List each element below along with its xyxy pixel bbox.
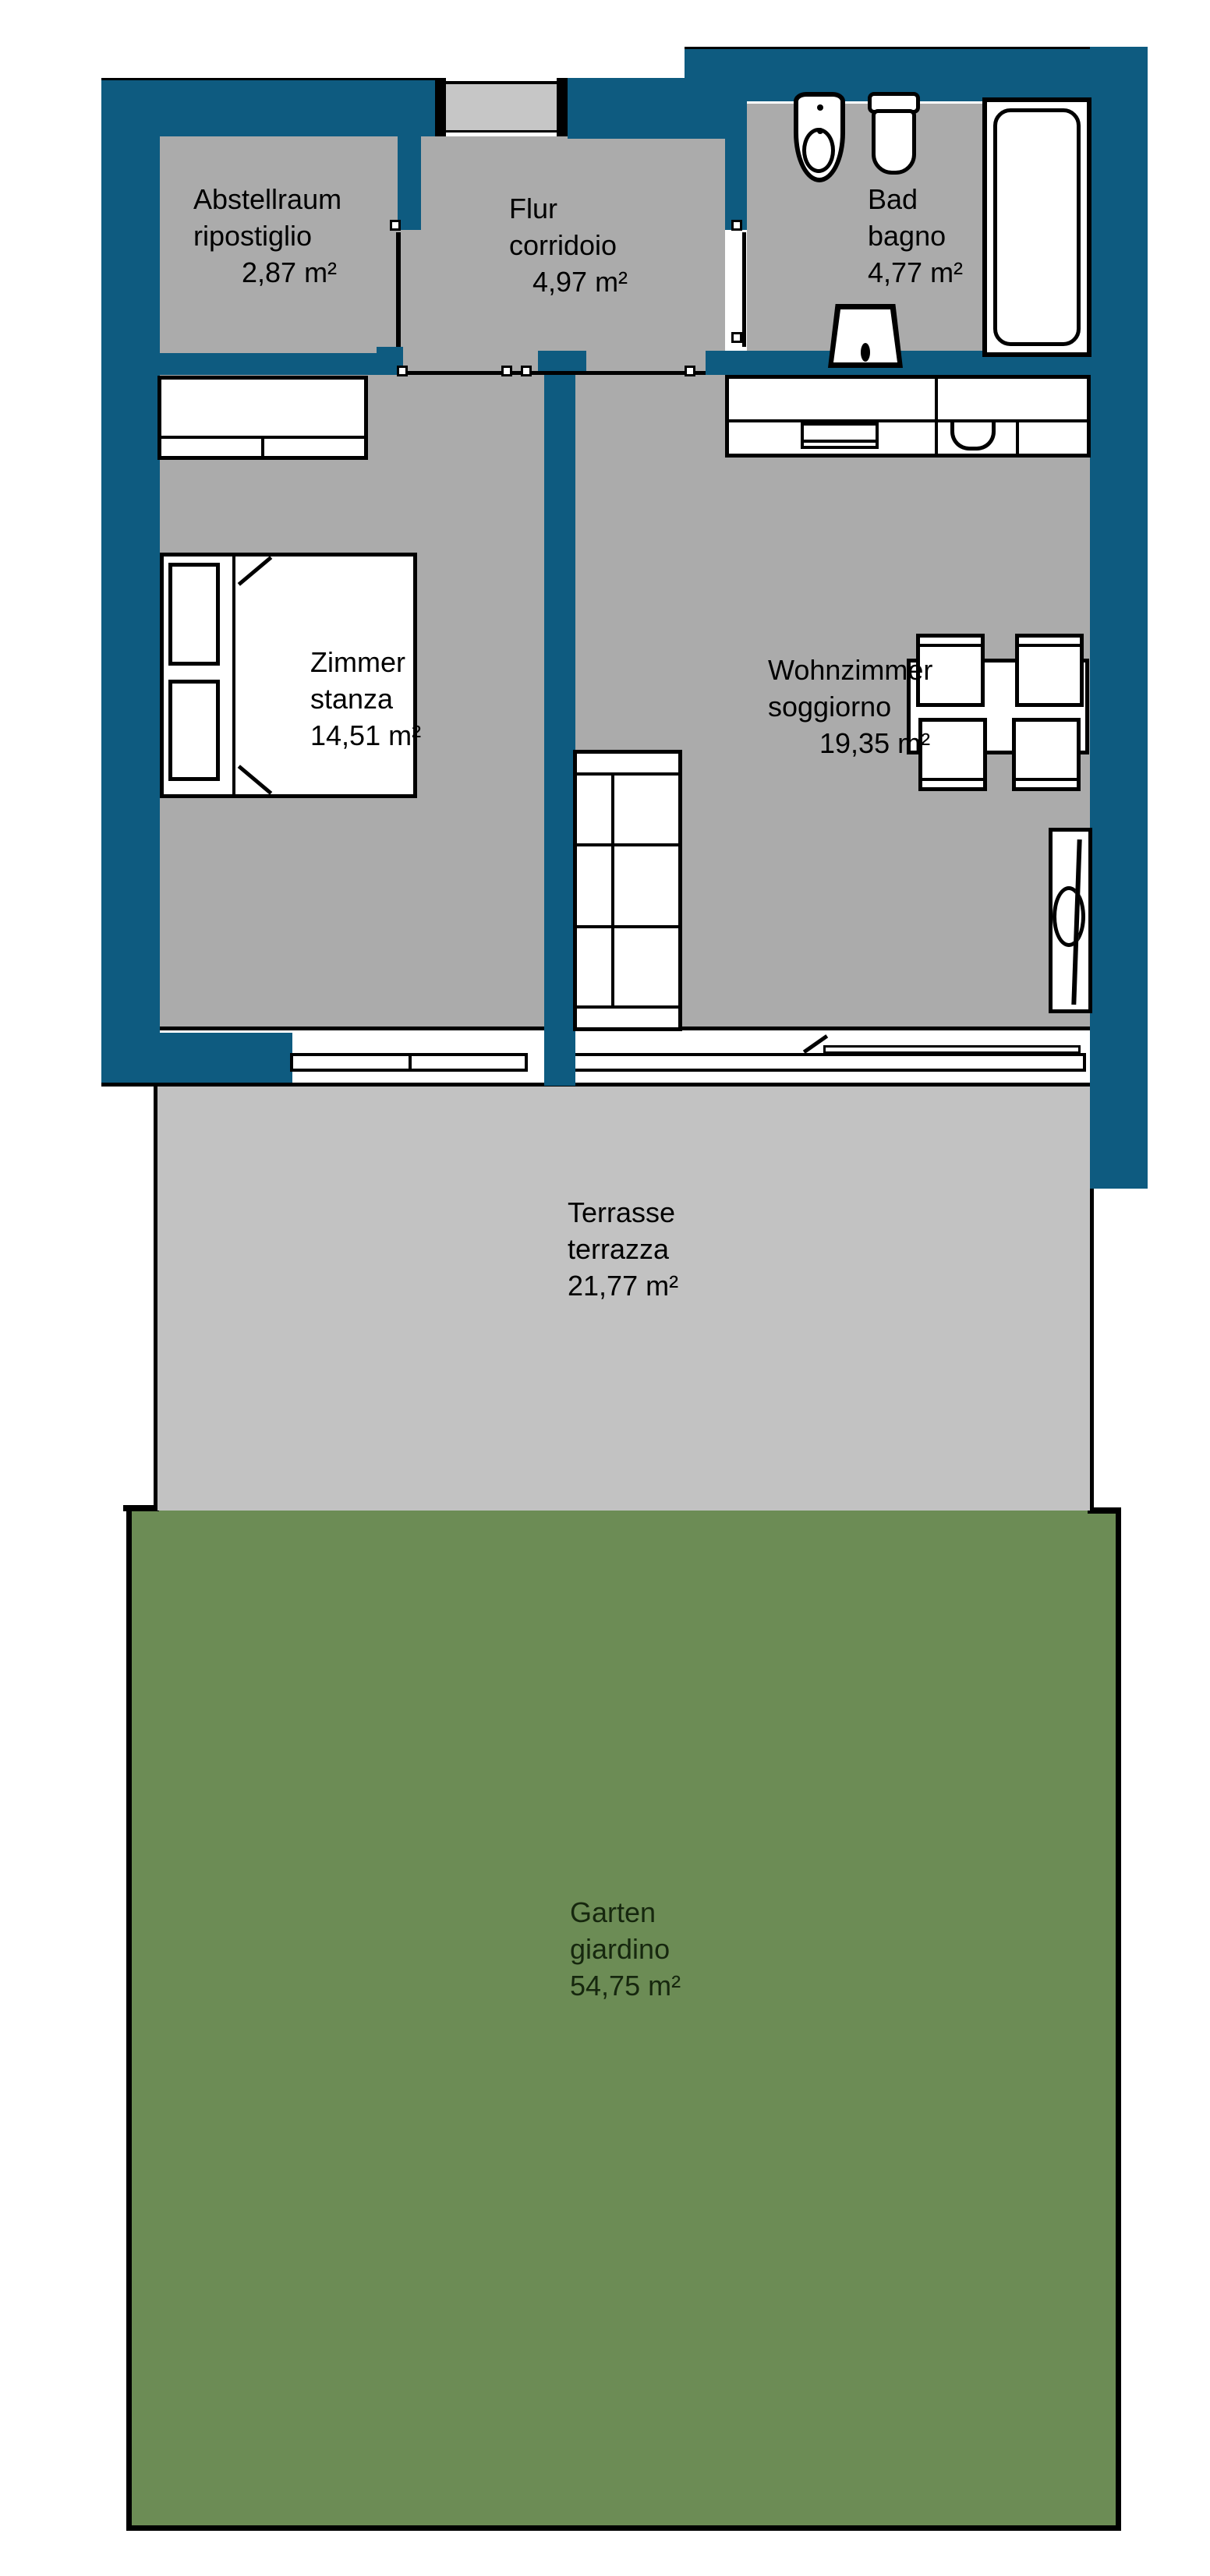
toilet-bowl [872, 109, 916, 175]
room-name-de: Flur [509, 190, 628, 227]
wall-zimmer-top [101, 353, 403, 375]
entrance-jamb-right [557, 78, 568, 136]
room-label-flur: Flur corridoio 4,97 m² [509, 190, 628, 300]
wall-right-exterior [1090, 47, 1148, 1189]
room-name-de: Terrasse [568, 1194, 678, 1231]
wall-bottom-left-foot [101, 1033, 292, 1086]
bidet-dot [817, 128, 823, 134]
door-jamb [731, 220, 742, 231]
sofa-armrest-line [577, 772, 678, 776]
chair [1015, 634, 1084, 707]
wall-partition-stem [544, 375, 575, 1086]
door-jamb [390, 220, 401, 231]
tv-board [1049, 828, 1092, 1013]
pillow [168, 563, 220, 666]
pillow [168, 680, 220, 781]
kitchen-divider-v2 [1016, 422, 1019, 454]
bathtub-inner [993, 108, 1081, 346]
sofa-seat-divider [577, 843, 678, 846]
room-label-zimmer: Zimmer stanza 14,51 m² [310, 644, 421, 754]
window-zimmer [290, 1053, 528, 1072]
bidet-bowl [802, 128, 835, 173]
room-name-it: bagno [868, 217, 963, 254]
kitchen-divider-h [729, 419, 1087, 422]
bathtub [982, 97, 1091, 357]
room-area: 14,51 m² [310, 717, 421, 754]
chair-back [1016, 778, 1077, 781]
entrance-door-panel [446, 81, 557, 133]
bad-door-leaf [742, 232, 746, 347]
washbasin [828, 304, 903, 368]
wall-top-left [101, 78, 435, 136]
chair-back [920, 644, 981, 647]
room-label-bad: Bad bagno 4,77 m² [868, 181, 963, 291]
door-jamb [397, 366, 408, 376]
room-name-it: giardino [570, 1931, 681, 1967]
stove-line [804, 440, 876, 443]
bidet-dot [817, 104, 823, 111]
wall-flur-bad [725, 104, 747, 230]
chair [1012, 718, 1081, 791]
room-area: 54,75 m² [570, 1967, 681, 2004]
room-label-wohnzimmer: Wohnzimmer soggiorno 19,35 m² [768, 652, 932, 761]
room-area: 19,35 m² [768, 725, 932, 761]
room-name-de: Zimmer [310, 644, 421, 680]
wall-left-exterior [101, 78, 160, 1033]
window-bottom-line [101, 1083, 1090, 1087]
door-jamb [501, 366, 512, 376]
room-area: 4,77 m² [868, 254, 963, 291]
wardrobe [157, 376, 368, 460]
room-name-it: stanza [310, 680, 421, 717]
door-jamb [731, 332, 742, 343]
bed-fold-line [238, 556, 273, 586]
room-area: 21,77 m² [568, 1267, 678, 1304]
wardrobe-door-divider [261, 439, 264, 456]
garden-area [126, 1511, 1121, 2531]
floor-plan: Abstellraum ripostiglio 2,87 m² Flur cor… [0, 0, 1210, 2576]
tv-stand-circle [1053, 886, 1085, 947]
bed-head-line [232, 557, 235, 794]
room-name-de: Garten [570, 1894, 681, 1931]
chair-back [1019, 644, 1080, 647]
stove [801, 422, 879, 449]
room-label-garten: Garten giardino 54,75 m² [570, 1894, 681, 2004]
sofa-seat-divider [577, 925, 678, 928]
sofa [573, 750, 682, 1031]
room-area: 4,97 m² [509, 263, 628, 300]
wall-abstellraum-flur [398, 136, 421, 230]
kitchen-counter [725, 375, 1091, 458]
wall-zimmer-top-step [377, 347, 403, 355]
door-jamb [685, 366, 695, 376]
room-area: 2,87 m² [193, 254, 341, 291]
window-divider [409, 1056, 412, 1069]
room-label-abstellraum: Abstellraum ripostiglio 2,87 m² [193, 181, 341, 291]
sliding-door-panel [823, 1045, 1081, 1054]
window-livingroom [563, 1053, 1086, 1072]
room-name-it: terrazza [568, 1231, 678, 1267]
kitchen-sink [950, 422, 996, 451]
room-name-de: Abstellraum [193, 181, 341, 217]
entrance-jamb-left [435, 78, 446, 136]
kitchen-divider-v [935, 379, 938, 454]
room-name-de: Wohnzimmer [768, 652, 932, 688]
room-name-it: corridoio [509, 227, 628, 263]
sofa-back-line [611, 772, 614, 1009]
sofa-armrest-line [577, 1005, 678, 1009]
room-name-it: soggiorno [768, 688, 932, 725]
abstellraum-door-leaf [396, 232, 401, 347]
door-jamb [521, 366, 532, 376]
room-name-it: ripostiglio [193, 217, 341, 254]
room-name-de: Bad [868, 181, 963, 217]
bed-fold-line [238, 765, 273, 795]
chair-back [922, 778, 983, 781]
washbasin-faucet [861, 343, 870, 362]
room-label-terrasse: Terrasse terrazza 21,77 m² [568, 1194, 678, 1304]
